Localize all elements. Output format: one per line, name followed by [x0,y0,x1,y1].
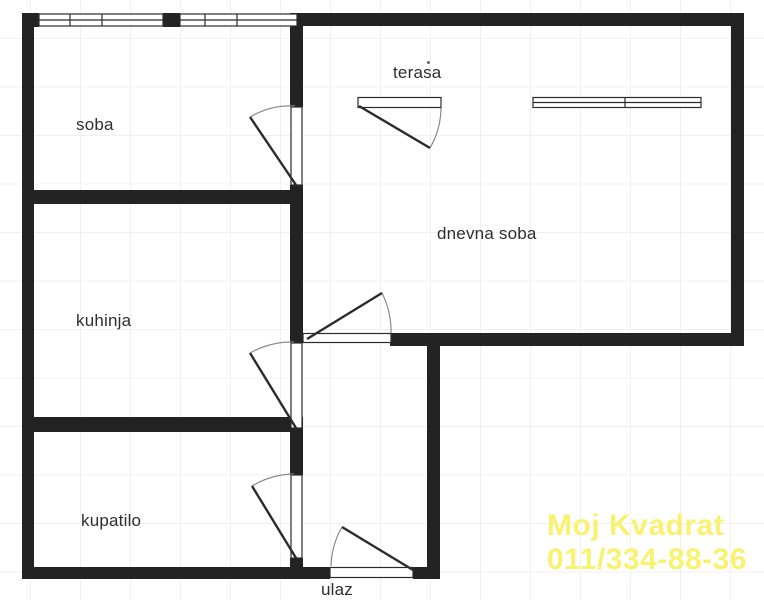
wall-outer-left [22,13,34,579]
room-label-kuhinja: kuhinja [76,311,131,331]
wall-bathroom-right-upper [290,432,303,475]
wall-outer-top-right [297,13,744,26]
wall-soba-bottom [34,190,303,204]
floor-plan: soba terasa dnevna soba kuhinja kupatilo… [0,0,764,600]
wall-livingroom-bottom [390,333,744,346]
room-label-dnevna-soba: dnevna soba [437,224,537,244]
wall-kitchen-right [290,204,303,343]
wall-top-corner-left [22,13,39,27]
wall-outer-bottom-right [413,567,440,579]
wall-soba-right-lower [290,185,303,204]
wall-bathroom-right-lower [290,558,303,579]
window-livingroom-icon [533,98,701,108]
watermark-phone: 011/334-88-36 [547,543,747,577]
door-kuhinja-icon [250,342,302,428]
room-label-kupatilo: kupatilo [81,511,141,531]
wall-outer-right [731,13,744,346]
door-ulaz-icon [330,527,413,578]
watermark-brand: Moj Kvadrat [547,509,747,543]
room-label-ulaz: ulaz [321,580,353,600]
window-soba-left-icon [39,14,163,26]
wall-soba-right-upper [290,13,303,107]
door-soba-icon [250,106,302,185]
windows [39,14,701,108]
door-dnevna-soba-icon [303,293,391,343]
window-soba-right-icon [180,14,297,26]
room-label-soba: soba [76,115,114,135]
room-label-terasa: terasa [393,63,441,83]
door-kupatilo-icon [252,474,302,558]
door-terasa-icon [358,98,441,149]
wall-outer-bottom-left [22,567,330,579]
wall-hall-right [427,343,440,579]
watermark: Moj Kvadrat 011/334-88-36 [547,509,747,577]
wall-kitchen-bathroom-divider [34,417,303,432]
wall-top-between-windows [163,13,180,27]
